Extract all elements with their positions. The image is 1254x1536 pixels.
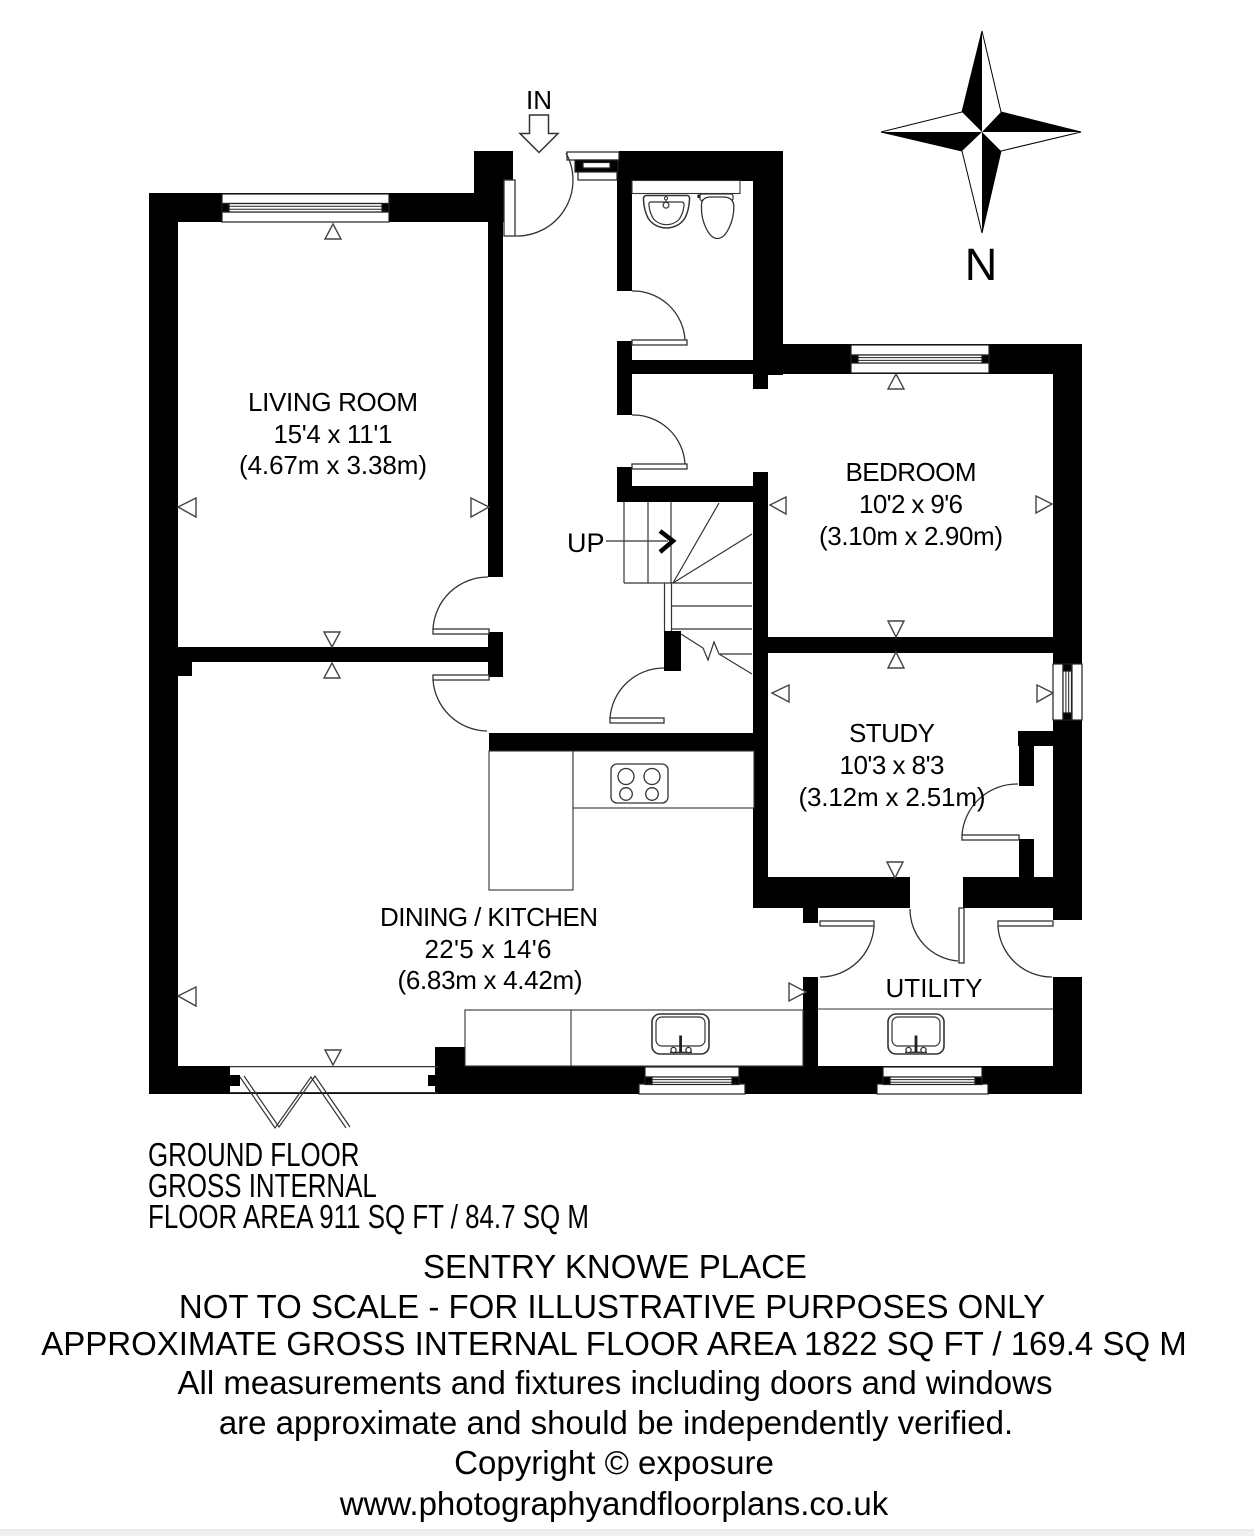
svg-text:(3.12m x 2.51m): (3.12m x 2.51m): [799, 782, 986, 812]
svg-text:IN: IN: [526, 85, 552, 115]
svg-text:(6.83m x 4.42m): (6.83m x 4.42m): [398, 965, 583, 995]
svg-text:N: N: [965, 239, 998, 290]
svg-text:UP: UP: [567, 528, 605, 558]
svg-text:All measurements and fixtures: All measurements and fixtures including …: [178, 1364, 1053, 1401]
svg-text:UTILITY: UTILITY: [886, 973, 983, 1003]
svg-text:(4.67m x 3.38m): (4.67m x 3.38m): [239, 450, 427, 480]
svg-text:DINING / KITCHEN: DINING / KITCHEN: [380, 902, 598, 932]
svg-text:LIVING ROOM: LIVING ROOM: [248, 387, 418, 417]
svg-text:SENTRY KNOWE PLACE: SENTRY KNOWE PLACE: [423, 1248, 807, 1285]
svg-text:22'5 x 14'6: 22'5 x 14'6: [425, 934, 552, 964]
svg-text:BEDROOM: BEDROOM: [846, 457, 977, 487]
svg-text:Copyright © exposure: Copyright © exposure: [454, 1444, 774, 1481]
svg-text:(3.10m x 2.90m): (3.10m x 2.90m): [819, 521, 1003, 551]
svg-text:www.photographyandfloorplans.c: www.photographyandfloorplans.co.uk: [339, 1485, 889, 1522]
svg-text:15'4 x 11'1: 15'4 x 11'1: [274, 419, 393, 449]
svg-text:10'2 x 9'6: 10'2 x 9'6: [859, 489, 963, 519]
svg-text:APPROXIMATE GROSS INTERNAL FLO: APPROXIMATE GROSS INTERNAL FLOOR AREA 18…: [41, 1325, 1187, 1362]
svg-text:FLOOR AREA 911 SQ FT / 84.7 SQ: FLOOR AREA 911 SQ FT / 84.7 SQ M: [148, 1199, 589, 1236]
svg-text:NOT TO SCALE - FOR ILLUSTRATIV: NOT TO SCALE - FOR ILLUSTRATIVE PURPOSES…: [179, 1288, 1045, 1325]
svg-text:10'3 x 8'3: 10'3 x 8'3: [840, 750, 945, 780]
svg-text:STUDY: STUDY: [849, 718, 935, 748]
svg-text:are approximate and should be: are approximate and should be independen…: [219, 1404, 1013, 1441]
